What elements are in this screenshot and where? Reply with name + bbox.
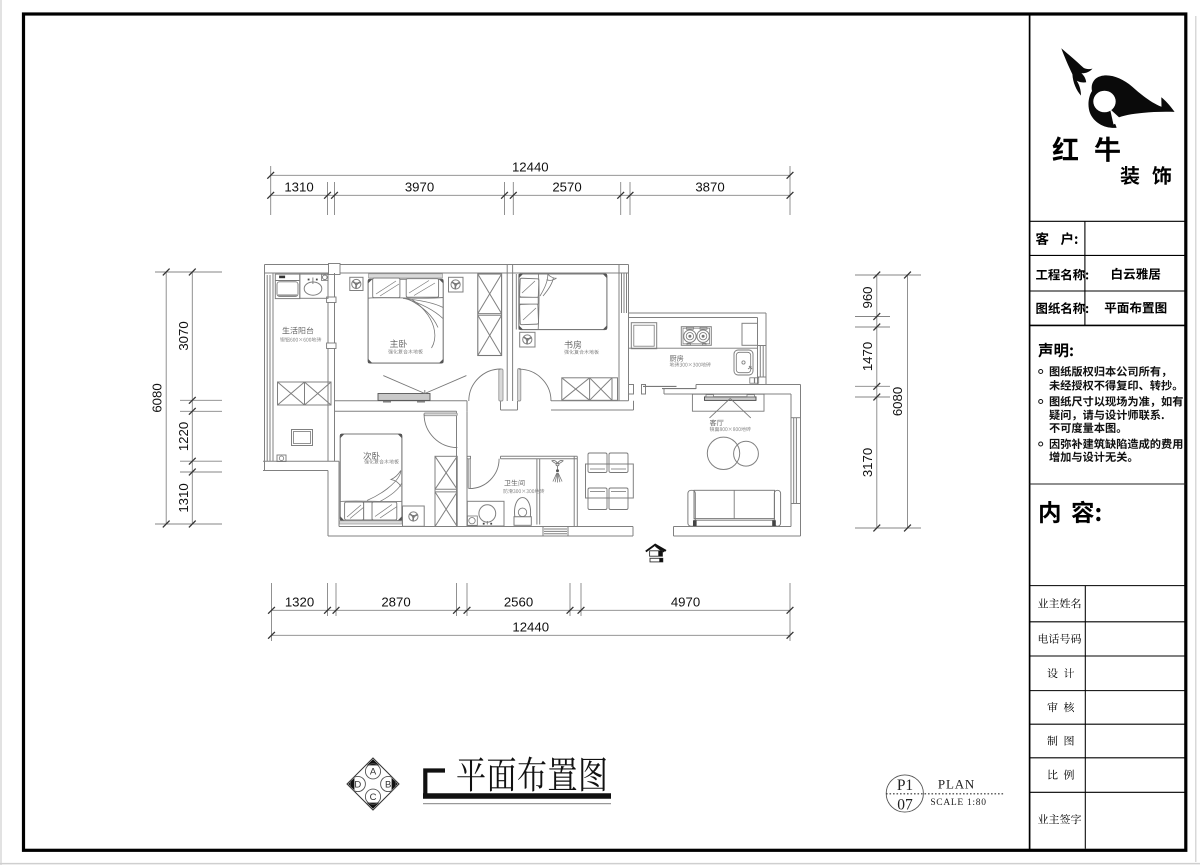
svg-text:2870: 2870 (381, 595, 410, 610)
svg-text:07: 07 (897, 797, 913, 814)
svg-text:PLAN: PLAN (938, 777, 975, 792)
svg-text:3070: 3070 (176, 321, 191, 350)
svg-text:P1: P1 (897, 777, 913, 794)
svg-text:SCALE 1:80: SCALE 1:80 (930, 798, 986, 808)
svg-text:1470: 1470 (860, 342, 875, 371)
svg-text:960: 960 (860, 286, 875, 308)
svg-text:3870: 3870 (695, 180, 724, 195)
svg-text:6080: 6080 (890, 387, 905, 416)
svg-text:B: B (385, 779, 391, 790)
svg-text:4970: 4970 (671, 595, 700, 610)
svg-text:12440: 12440 (512, 620, 549, 635)
svg-text:D: D (354, 779, 361, 790)
svg-text:1320: 1320 (285, 595, 314, 610)
svg-text:2560: 2560 (504, 595, 533, 610)
svg-text:A: A (370, 767, 377, 778)
svg-text:2570: 2570 (552, 180, 581, 195)
svg-text:1220: 1220 (176, 422, 191, 451)
svg-text:1310: 1310 (176, 483, 191, 512)
svg-text:12440: 12440 (512, 160, 549, 175)
svg-text:3170: 3170 (860, 448, 875, 477)
svg-text:C: C (370, 792, 377, 803)
svg-text:1310: 1310 (284, 180, 313, 195)
svg-text:6080: 6080 (150, 383, 165, 412)
svg-text:3970: 3970 (405, 180, 434, 195)
